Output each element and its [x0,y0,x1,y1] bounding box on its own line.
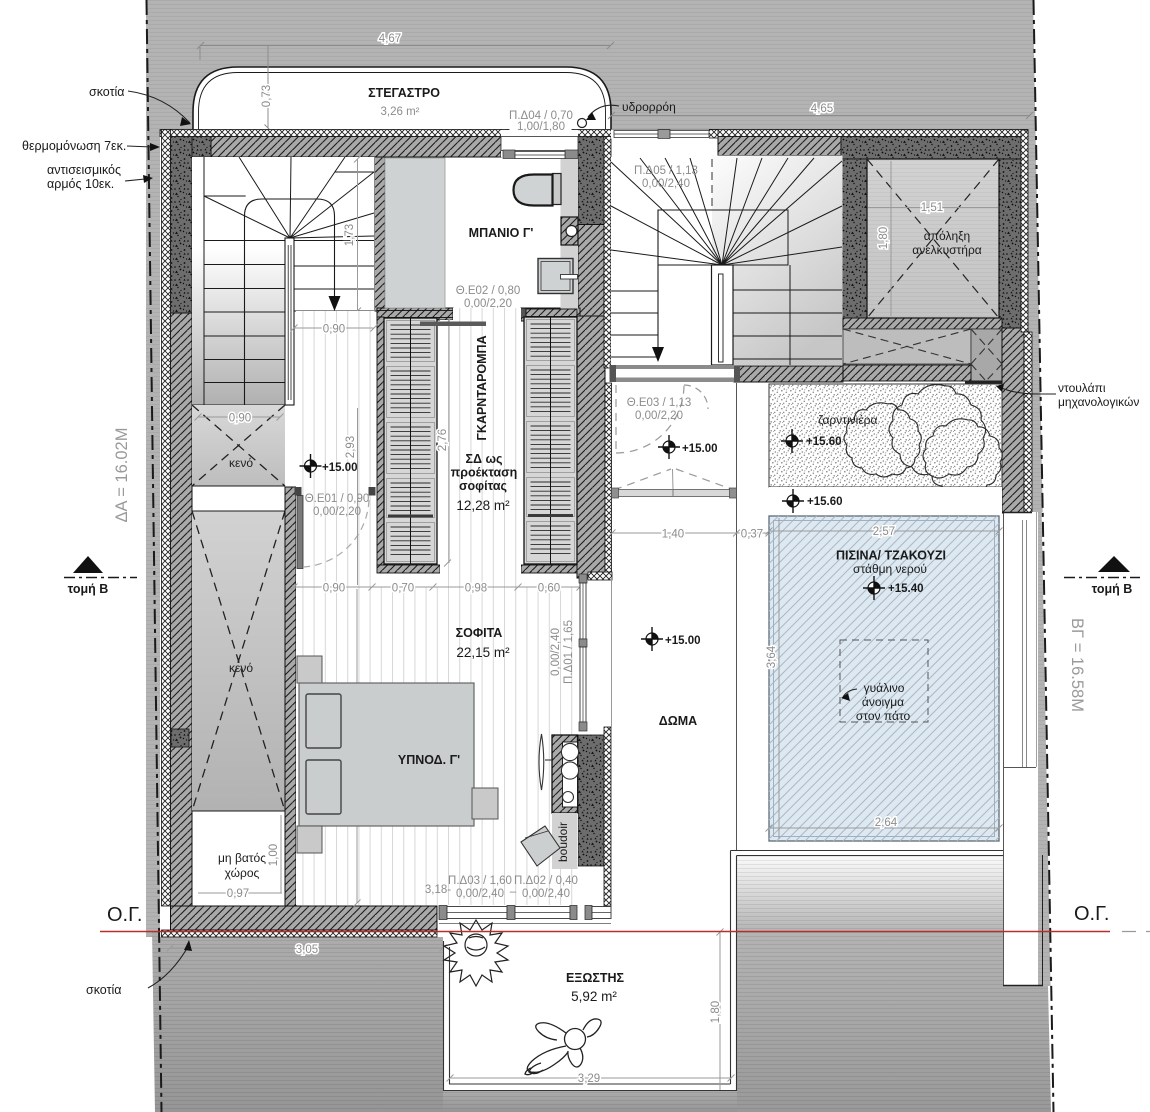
svg-text:4,67: 4,67 [379,33,401,45]
svg-text:2,57: 2,57 [873,526,895,538]
svg-text:αντισεισμικός: αντισεισμικός [47,163,121,177]
svg-text:+15.00: +15.00 [682,443,718,455]
svg-text:θερμομόνωση 7εκ.: θερμομόνωση 7εκ. [22,139,126,153]
svg-text:ΜΠΑΝΙΟ Γ': ΜΠΑΝΙΟ Γ' [469,226,534,240]
svg-text:1,73: 1,73 [344,224,356,246]
svg-text:3,29: 3,29 [578,1073,600,1085]
svg-text:2,93: 2,93 [345,436,357,458]
svg-text:σκοτία: σκοτία [89,85,125,99]
svg-text:στάθμη νερού: στάθμη νερού [853,562,927,576]
svg-text:1,00/1,80: 1,00/1,80 [517,121,565,133]
svg-text:σοφίτας: σοφίτας [459,479,507,493]
svg-text:3,26 m²: 3,26 m² [381,106,420,118]
svg-text:1,51: 1,51 [921,202,943,214]
svg-text:+15.60: +15.60 [807,496,843,508]
svg-text:τομή Β: τομή Β [68,582,109,596]
svg-text:3,64: 3,64 [766,645,778,668]
svg-text:boudoir: boudoir [556,822,570,862]
svg-text:–: – [510,886,517,898]
svg-text:Π.Δ01 / 1,65: Π.Δ01 / 1,65 [563,620,575,684]
svg-text:ΒΓ = 16.58Μ: ΒΓ = 16.58Μ [1068,618,1086,712]
svg-text:γυάλινο: γυάλινο [864,681,905,695]
svg-text:0,00/2,40: 0,00/2,40 [522,888,570,900]
svg-text:απόληξη: απόληξη [924,229,970,243]
svg-text:3,05: 3,05 [296,944,318,956]
svg-text:0,00/2,40: 0,00/2,40 [642,178,690,190]
svg-text:ΥΠΝΟΔ. Γ': ΥΠΝΟΔ. Γ' [398,753,460,767]
svg-text:Ο.Γ.: Ο.Γ. [107,904,143,926]
svg-text:χώρος: χώρος [225,866,260,880]
svg-text:ΔΑ = 16.02Μ: ΔΑ = 16.02Μ [113,428,131,523]
svg-text:μη βατός: μη βατός [218,851,266,865]
svg-text:κενό: κενό [229,456,253,470]
svg-text:ανελκυστήρα: ανελκυστήρα [912,243,981,257]
svg-text:στον πάτο: στον πάτο [856,709,911,723]
svg-text:Π.Δ05 / 1,13: Π.Δ05 / 1,13 [634,165,698,177]
svg-text:Θ.Ε02 / 0,80: Θ.Ε02 / 0,80 [456,285,521,297]
svg-text:1,80: 1,80 [878,227,890,249]
svg-text:Π.Δ03 / 1,60: Π.Δ03 / 1,60 [448,875,512,887]
svg-text:0,97: 0,97 [227,888,249,900]
svg-text:0,60: 0,60 [538,583,560,595]
svg-text:0,90: 0,90 [323,324,345,336]
svg-text:προέκταση: προέκταση [451,466,518,480]
svg-text:0,98: 0,98 [465,583,487,595]
svg-text:3,18-: 3,18- [425,884,451,896]
svg-text:0,73: 0,73 [261,85,273,107]
svg-text:22,15 m²: 22,15 m² [456,645,510,660]
svg-text:4,65: 4,65 [811,103,833,115]
svg-text:ΕΞΩΣΤΗΣ: ΕΞΩΣΤΗΣ [566,971,625,985]
svg-text:ΣΤΕΓΑΣΤΡΟ: ΣΤΕΓΑΣΤΡΟ [368,86,440,100]
svg-text:ΣΟΦΙΤΑ: ΣΟΦΙΤΑ [456,626,503,640]
svg-text:0,00/2,20: 0,00/2,20 [313,506,361,518]
svg-text:ζαρντινιέρα: ζαρντινιέρα [818,413,878,427]
svg-text:ΔΩΜΑ: ΔΩΜΑ [659,714,697,728]
svg-text:ΣΔ ως: ΣΔ ως [465,452,502,466]
svg-text:+15.60: +15.60 [806,436,842,448]
svg-text:μηχανολογικών: μηχανολογικών [1058,395,1139,409]
svg-text:0,37: 0,37 [741,529,763,541]
svg-text:+15.40: +15.40 [888,583,924,595]
svg-text:Ο.Γ.: Ο.Γ. [1074,903,1110,925]
svg-text:0,70: 0,70 [392,583,414,595]
svg-text:ΓΚΑΡΝΤΑΡΟΜΠΑ: ΓΚΑΡΝΤΑΡΟΜΠΑ [475,335,489,440]
svg-text:0,90: 0,90 [323,583,345,595]
svg-text:2,76: 2,76 [437,429,449,451]
svg-text:ΠΙΣΙΝΑ/ ΤΖΑΚΟΥΖΙ: ΠΙΣΙΝΑ/ ΤΖΑΚΟΥΖΙ [836,549,946,563]
svg-text:0,00/2,20: 0,00/2,20 [635,410,683,422]
svg-text:υδρορρόη: υδρορρόη [622,100,676,114]
svg-text:κενό: κενό [229,661,253,675]
svg-text:5,92 m²: 5,92 m² [571,989,617,1004]
svg-text:+15.00: +15.00 [322,462,358,474]
svg-text:+15.00: +15.00 [665,635,701,647]
svg-text:0,00/2,40: 0,00/2,40 [456,888,504,900]
svg-text:12,28 m²: 12,28 m² [456,498,510,513]
svg-text:σκοτία: σκοτία [86,983,122,997]
svg-text:1,40: 1,40 [662,529,684,541]
svg-text:ντουλάπι: ντουλάπι [1058,381,1106,395]
svg-text:0,00/2,40: 0,00/2,40 [550,628,562,676]
svg-text:Θ.Ε03 / 1,13: Θ.Ε03 / 1,13 [627,397,692,409]
svg-text:αρμός 10εκ.: αρμός 10εκ. [47,177,114,191]
svg-text:1,80: 1,80 [710,1001,722,1023]
svg-text:Π.Δ02 / 0,40: Π.Δ02 / 0,40 [514,875,578,887]
svg-text:τομή Β: τομή Β [1092,582,1133,596]
svg-text:άνοιγμα: άνοιγμα [862,695,904,709]
svg-text:2,64: 2,64 [875,817,898,829]
svg-text:1,00: 1,00 [268,844,280,866]
svg-text:Θ.Ε01 / 0,90: Θ.Ε01 / 0,90 [305,493,370,505]
svg-text:0,90: 0,90 [229,413,251,425]
